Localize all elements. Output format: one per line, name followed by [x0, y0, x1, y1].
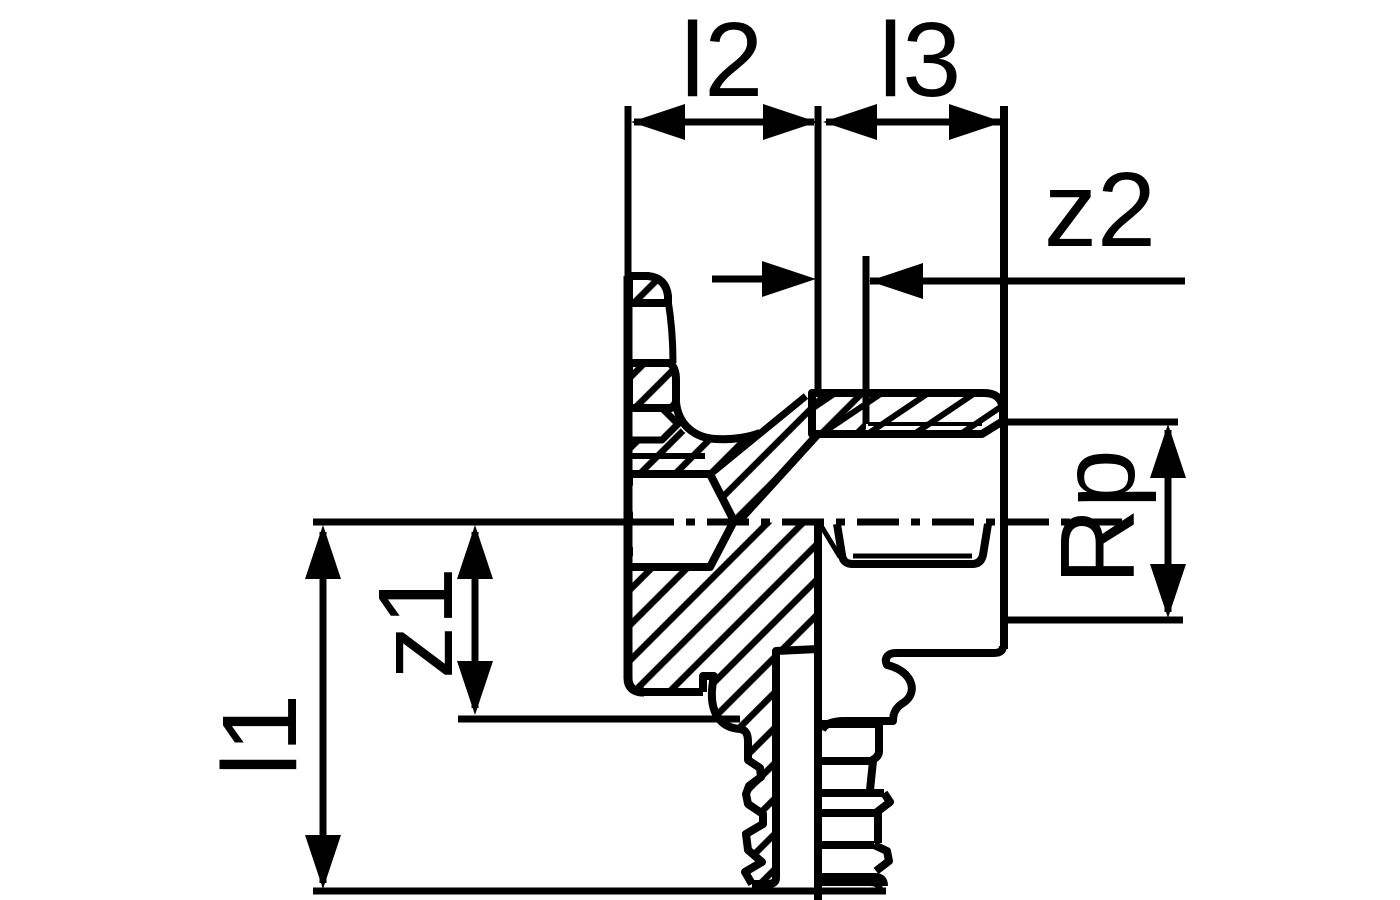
union-nut-top-wall: [629, 276, 668, 303]
drawing-canvas: l2 l3 z2 Rp z1 l1: [0, 0, 1400, 900]
union-nut-mid-wall: [629, 363, 676, 408]
l2-arrowhead-left: [631, 104, 685, 140]
nut-cavity-inner-wall: [668, 300, 673, 363]
technical-drawing: l2 l3 z2 Rp z1 l1: [0, 0, 1400, 900]
z2-label: z2: [1044, 151, 1156, 269]
z1-label: z1: [357, 567, 475, 679]
socket-exterior-outline: [822, 646, 1003, 730]
l1-arrowhead-down: [305, 835, 341, 889]
nut-thread-tooth-outline: [629, 408, 678, 440]
l1-label: l1: [201, 694, 319, 777]
l2-label: l2: [681, 1, 764, 119]
dimension-l3: l3: [823, 1, 1003, 140]
z2-leader-arrowhead: [762, 261, 816, 297]
dimension-z2: z2: [712, 151, 1185, 424]
l2-arrowhead-right: [763, 104, 817, 140]
dimension-l2: l2: [628, 1, 818, 396]
press-end-ribs: [819, 724, 890, 886]
rp-label: Rp: [1039, 449, 1157, 585]
cavity-floor-arc: [676, 402, 760, 439]
l1-arrowhead-up: [305, 525, 341, 579]
l3-label: l3: [879, 1, 962, 119]
socket-top-wall-left-hatch: [812, 393, 866, 434]
z2-arrowhead: [869, 263, 923, 299]
l3-arrowhead-left: [823, 104, 877, 140]
